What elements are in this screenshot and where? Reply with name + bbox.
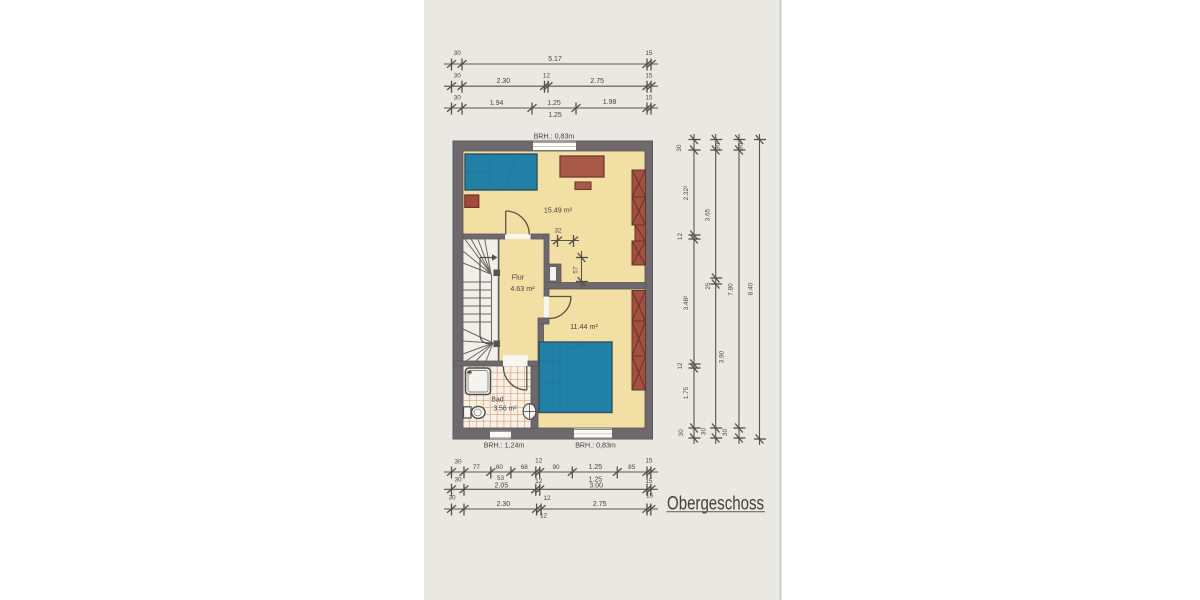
svg-text:30: 30 — [448, 495, 456, 502]
svg-text:1.75: 1.75 — [683, 386, 690, 399]
svg-text:30: 30 — [678, 429, 685, 437]
svg-text:4.63 m²: 4.63 m² — [510, 284, 535, 293]
svg-text:15: 15 — [645, 73, 653, 80]
svg-text:5.17: 5.17 — [548, 56, 562, 63]
svg-text:90: 90 — [552, 464, 560, 471]
svg-text:60: 60 — [496, 464, 504, 471]
svg-text:30: 30 — [715, 143, 722, 151]
svg-text:15.49 m²: 15.49 m² — [544, 206, 573, 215]
svg-text:12: 12 — [677, 362, 684, 370]
svg-text:12: 12 — [677, 233, 684, 241]
svg-text:7.80: 7.80 — [728, 283, 735, 296]
svg-text:2.30: 2.30 — [496, 501, 510, 508]
svg-text:12: 12 — [540, 513, 548, 520]
svg-text:2.30: 2.30 — [496, 78, 510, 85]
svg-text:1.25: 1.25 — [547, 100, 561, 107]
svg-text:2.75: 2.75 — [593, 501, 607, 508]
svg-text:1.94: 1.94 — [490, 100, 504, 107]
svg-text:30: 30 — [722, 429, 729, 437]
svg-text:30: 30 — [738, 143, 745, 151]
svg-text:1.25: 1.25 — [548, 112, 562, 119]
svg-text:25: 25 — [705, 282, 712, 290]
svg-text:1.25: 1.25 — [588, 464, 602, 471]
svg-text:30: 30 — [454, 95, 462, 102]
svg-text:12: 12 — [535, 478, 543, 485]
svg-text:12: 12 — [535, 458, 543, 465]
svg-text:3.48²: 3.48² — [683, 296, 690, 311]
svg-text:30: 30 — [676, 144, 683, 152]
svg-text:2.75: 2.75 — [590, 78, 604, 85]
svg-text:3.90: 3.90 — [719, 350, 726, 363]
svg-text:15: 15 — [645, 50, 653, 57]
svg-text:77: 77 — [473, 464, 481, 471]
svg-text:85: 85 — [628, 464, 636, 471]
svg-text:32: 32 — [554, 228, 562, 235]
svg-text:BRH.: 1,24m: BRH.: 1,24m — [484, 442, 525, 450]
svg-text:53: 53 — [497, 475, 505, 482]
svg-text:2.32²: 2.32² — [683, 186, 690, 201]
svg-text:3.56 m²: 3.56 m² — [493, 406, 517, 413]
svg-text:12: 12 — [543, 495, 551, 502]
svg-text:15: 15 — [645, 478, 653, 485]
svg-text:3.00: 3.00 — [589, 482, 603, 489]
svg-text:30: 30 — [454, 73, 462, 80]
svg-text:57: 57 — [573, 266, 580, 274]
svg-text:3.65: 3.65 — [705, 208, 712, 221]
svg-text:11.44 m²: 11.44 m² — [570, 322, 598, 331]
svg-text:12: 12 — [543, 73, 551, 80]
svg-text:BRH.: 0,83m: BRH.: 0,83m — [534, 133, 575, 141]
svg-text:Flur: Flur — [512, 273, 525, 282]
svg-text:30: 30 — [454, 459, 462, 466]
svg-text:30: 30 — [701, 428, 708, 436]
svg-text:Bad: Bad — [491, 397, 503, 404]
svg-text:30: 30 — [454, 50, 462, 57]
svg-text:30: 30 — [454, 477, 462, 484]
svg-text:8.40: 8.40 — [748, 282, 755, 295]
svg-text:15: 15 — [646, 493, 654, 500]
svg-text:68: 68 — [521, 464, 529, 471]
svg-text:15: 15 — [645, 95, 653, 102]
svg-text:BRH.: 0,83m: BRH.: 0,83m — [575, 442, 616, 450]
svg-text:15: 15 — [645, 458, 653, 465]
svg-text:2.05: 2.05 — [494, 482, 508, 489]
svg-text:1.98: 1.98 — [603, 99, 617, 106]
